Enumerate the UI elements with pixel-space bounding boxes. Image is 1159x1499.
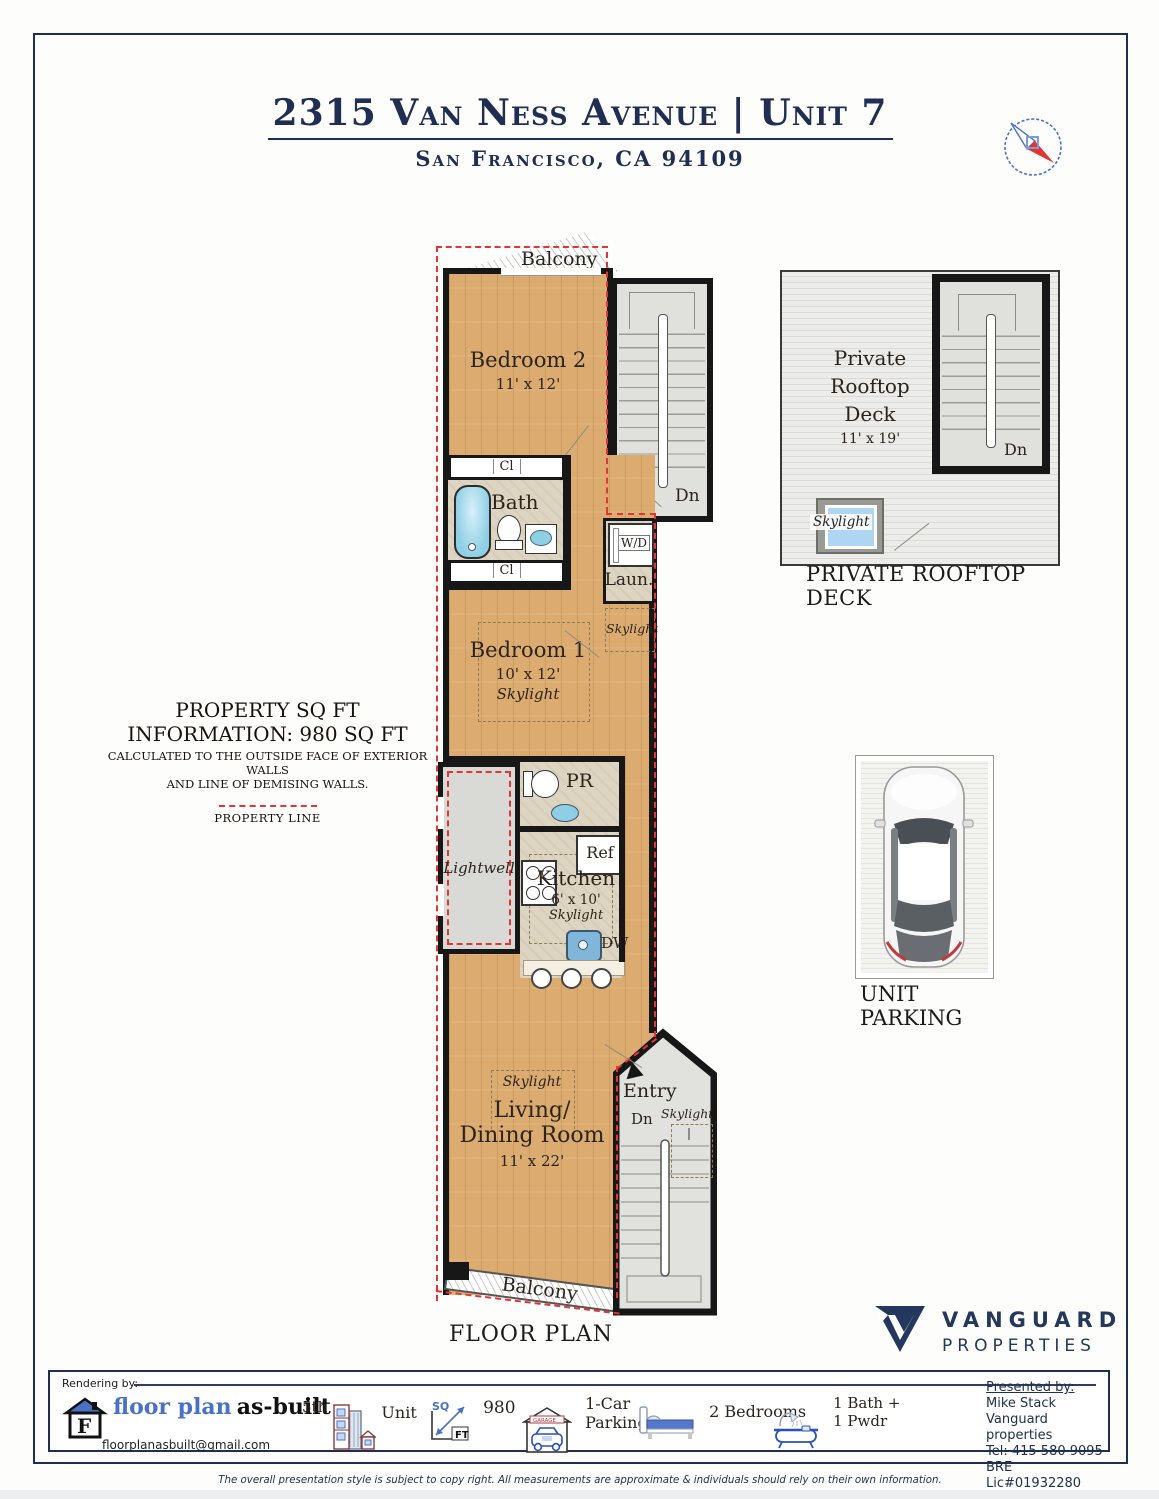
presented-by-name: Mike Stack	[986, 1396, 1108, 1412]
title-underline	[268, 138, 893, 140]
dishwasher	[566, 930, 602, 962]
stool-3	[591, 968, 612, 989]
rooftop-door	[894, 523, 929, 551]
property-line-left	[436, 246, 438, 1301]
kitchen-skylight-label: Skylight	[531, 908, 621, 923]
rooftop-deck-plan: Dn Private Rooftop Deck 11' x 19' Skylig…	[780, 270, 1060, 566]
stool-1	[531, 968, 552, 989]
property-line-entry-left	[616, 1066, 618, 1298]
bottom-band	[0, 1490, 1159, 1499]
washer-dryer: W/D	[608, 523, 654, 567]
vanguard-word1: VANGUARD	[942, 1308, 1122, 1332]
parking-caption: UNIT PARKING	[860, 982, 962, 1030]
kitchen-name: Kitchen	[531, 866, 621, 890]
pr-sink	[551, 804, 579, 822]
stat-bath-line1: 1 Bath +	[833, 1394, 900, 1412]
bedroom2-dims: 11' x 12'	[443, 375, 613, 393]
property-line-label: PROPERTY LINE	[95, 811, 440, 825]
property-info: PROPERTY SQ FT INFORMATION: 980 SQ FT CA…	[95, 698, 440, 825]
fpab-logo: F floor plan as-built floorplanasbuilt@g…	[62, 1394, 331, 1452]
rooftop-stairs-rail	[986, 314, 996, 448]
sqft-ft-text: FT	[455, 1430, 469, 1441]
stat-floor: 5th Unit	[302, 1398, 417, 1451]
bedroom1-name: Bedroom 1	[443, 638, 613, 662]
stat-floor-label: Unit	[381, 1403, 416, 1422]
rooftop-stairwell: Dn	[932, 274, 1050, 474]
vanguard-logo-icon	[872, 1302, 928, 1356]
balcony-top-label: Balcony	[521, 248, 597, 270]
rooftop-skylight-label: Skylight	[810, 514, 872, 530]
kitchen-right-wall	[619, 762, 625, 962]
kitchen-labels: Kitchen 6' x 10' Skylight	[531, 866, 621, 923]
bath-bottom-wall	[443, 584, 571, 590]
stairs-dn-label: Dn	[675, 486, 700, 506]
bed-icon	[638, 1405, 696, 1441]
rooftop-caption-line1: PRIVATE ROOFTOP	[806, 562, 1026, 586]
rooftop-labels: Private Rooftop Deck 11' x 19'	[800, 346, 940, 447]
rooftop-dn-label: Dn	[1004, 440, 1027, 459]
parking-caption-line2: PARKING	[860, 1006, 962, 1030]
stool-2	[561, 968, 582, 989]
property-line-top	[436, 246, 608, 248]
title-block: 2315 Van Ness Avenue | Unit 7 San Franci…	[180, 92, 980, 171]
vanguard-wordmark: VANGUARD PROPERTIES	[942, 1308, 1122, 1356]
laundry-skylight-label: Skylight	[606, 621, 654, 636]
presented-by-heading: Presented by:	[986, 1380, 1108, 1396]
vanguard-word2: PROPERTIES	[942, 1336, 1122, 1356]
rendering-by-rule	[134, 1384, 1096, 1386]
rooftop-line2: Rooftop	[800, 374, 940, 398]
living-dims: 11' x 22'	[441, 1152, 623, 1170]
entry-skylight-box	[671, 1124, 713, 1178]
laundry-label: Laun.	[601, 570, 657, 590]
floor-plan-caption: FLOOR PLAN	[449, 1322, 613, 1347]
fpab-brand-blue: floor plan	[113, 1394, 232, 1420]
entry-skylight-label: Skylight	[661, 1106, 713, 1121]
living-labels: Skylight Living/ Dining Room 11' x 22'	[441, 1074, 623, 1170]
closet-top: Cl	[448, 455, 565, 480]
disclaimer-text: The overall presentation style is subjec…	[218, 1473, 942, 1486]
bath-sink	[525, 524, 557, 554]
rooftop-line3: Deck	[800, 402, 940, 426]
vanguard-logo	[872, 1302, 928, 1360]
parking-space	[855, 755, 994, 979]
car-top-view	[874, 764, 974, 970]
bathtub	[454, 485, 491, 559]
lightwell-property-dash	[447, 771, 511, 945]
rendering-by-label: Rendering by:	[62, 1377, 138, 1390]
closet-top-label: Cl	[493, 459, 521, 474]
stat-sqft-value: 980	[483, 1398, 515, 1418]
disclaimer: The overall presentation style is subjec…	[0, 1468, 1159, 1487]
living-skylight-label: Skylight	[441, 1074, 623, 1090]
lightwell-label: Lightwell	[443, 859, 515, 877]
garage-icon: GARAGE	[522, 1406, 572, 1454]
property-info-line4: AND LINE OF DEMISING WALLS.	[95, 777, 440, 791]
main-floor-plan: Balcony Bedroom 2 11' x 12' Up Dn Cl	[433, 222, 733, 1362]
footer-box: Rendering by: F floor plan as-built floo…	[48, 1370, 1110, 1452]
bath-right-wall	[563, 455, 571, 587]
bedroom1-skylight-label: Skylight	[443, 685, 613, 703]
property-info-line1: PROPERTY SQ FT	[95, 698, 440, 722]
bedroom2-labels: Bedroom 2 11' x 12'	[443, 348, 613, 393]
stat-bath: 1 Bath + 1 Pwdr	[772, 1394, 900, 1452]
fpab-letter: F	[77, 1414, 91, 1438]
building-icon	[332, 1401, 376, 1451]
presented-by-tel: Tel: 415 580 9095	[986, 1444, 1108, 1460]
stat-sqft: SQ FT 980	[428, 1398, 516, 1443]
entry-label: Entry	[623, 1080, 677, 1102]
living-name-line1: Living/	[441, 1098, 623, 1123]
closet-bottom: Cl	[448, 560, 565, 584]
living-name-line2: Dining Room	[441, 1123, 623, 1148]
property-line-jog	[606, 513, 656, 515]
property-line-stair	[606, 252, 608, 513]
refrigerator-label: Ref	[578, 843, 622, 862]
sqft-sq-text: SQ	[432, 1400, 449, 1413]
pr-label: PR	[566, 770, 593, 792]
property-line-sample	[219, 805, 317, 807]
stat-parking: GARAGE 1-Car Parking	[522, 1394, 648, 1454]
lightwell-window2	[438, 884, 444, 916]
lightwell-window1	[438, 797, 444, 829]
property-info-line3: CALCULATED TO THE OUTSIDE FACE OF EXTERI…	[95, 749, 440, 777]
rooftop-dims: 11' x 19'	[800, 431, 940, 447]
washer-dryer-label: W/D	[618, 535, 650, 551]
entry-dn-label: Dn	[631, 1110, 653, 1128]
parking-caption-line1: UNIT	[860, 982, 962, 1006]
property-line-right	[654, 513, 656, 1037]
bath-toilet-tank	[495, 540, 523, 550]
pr-toilet	[531, 770, 559, 798]
bedroom2-window	[501, 268, 601, 276]
bath-label: Bath	[491, 490, 539, 514]
bedroom2-name: Bedroom 2	[443, 348, 613, 372]
living-left-corner-wall	[443, 1262, 469, 1280]
stat-bath-line2: 1 Pwdr	[833, 1412, 900, 1430]
sqft-icon: SQ FT	[428, 1399, 472, 1443]
floor-plan-sheet: 2315 Van Ness Avenue | Unit 7 San Franci…	[0, 0, 1159, 1499]
bathtub-icon	[772, 1408, 820, 1452]
closet-bottom-label: Cl	[493, 563, 521, 578]
property-info-line2: INFORMATION: 980 SQ FT	[95, 722, 440, 746]
kitchen-dims: 6' x 10'	[531, 892, 621, 908]
compass-icon	[1000, 114, 1066, 184]
bedroom1-dims: 10' x 12'	[443, 665, 613, 683]
garage-mini-text: GARAGE	[533, 1418, 557, 1424]
stat-floor-prefix: 5th	[302, 1398, 327, 1416]
lightwell: Lightwell	[438, 762, 520, 954]
fpab-email: floorplanasbuilt@gmail.com	[102, 1438, 331, 1452]
rooftop-caption-line2: DECK	[806, 586, 1026, 610]
stairs-top-rail	[658, 314, 668, 488]
page-subtitle: San Francisco, CA 94109	[180, 146, 980, 171]
rooftop-line1: Private	[800, 346, 940, 370]
rooftop-caption: PRIVATE ROOFTOP DECK	[806, 562, 1026, 610]
page-title: 2315 Van Ness Avenue | Unit 7	[180, 92, 980, 134]
fpab-house-icon: F	[62, 1396, 108, 1440]
presented-by-company: Vanguard properties	[986, 1412, 1108, 1444]
